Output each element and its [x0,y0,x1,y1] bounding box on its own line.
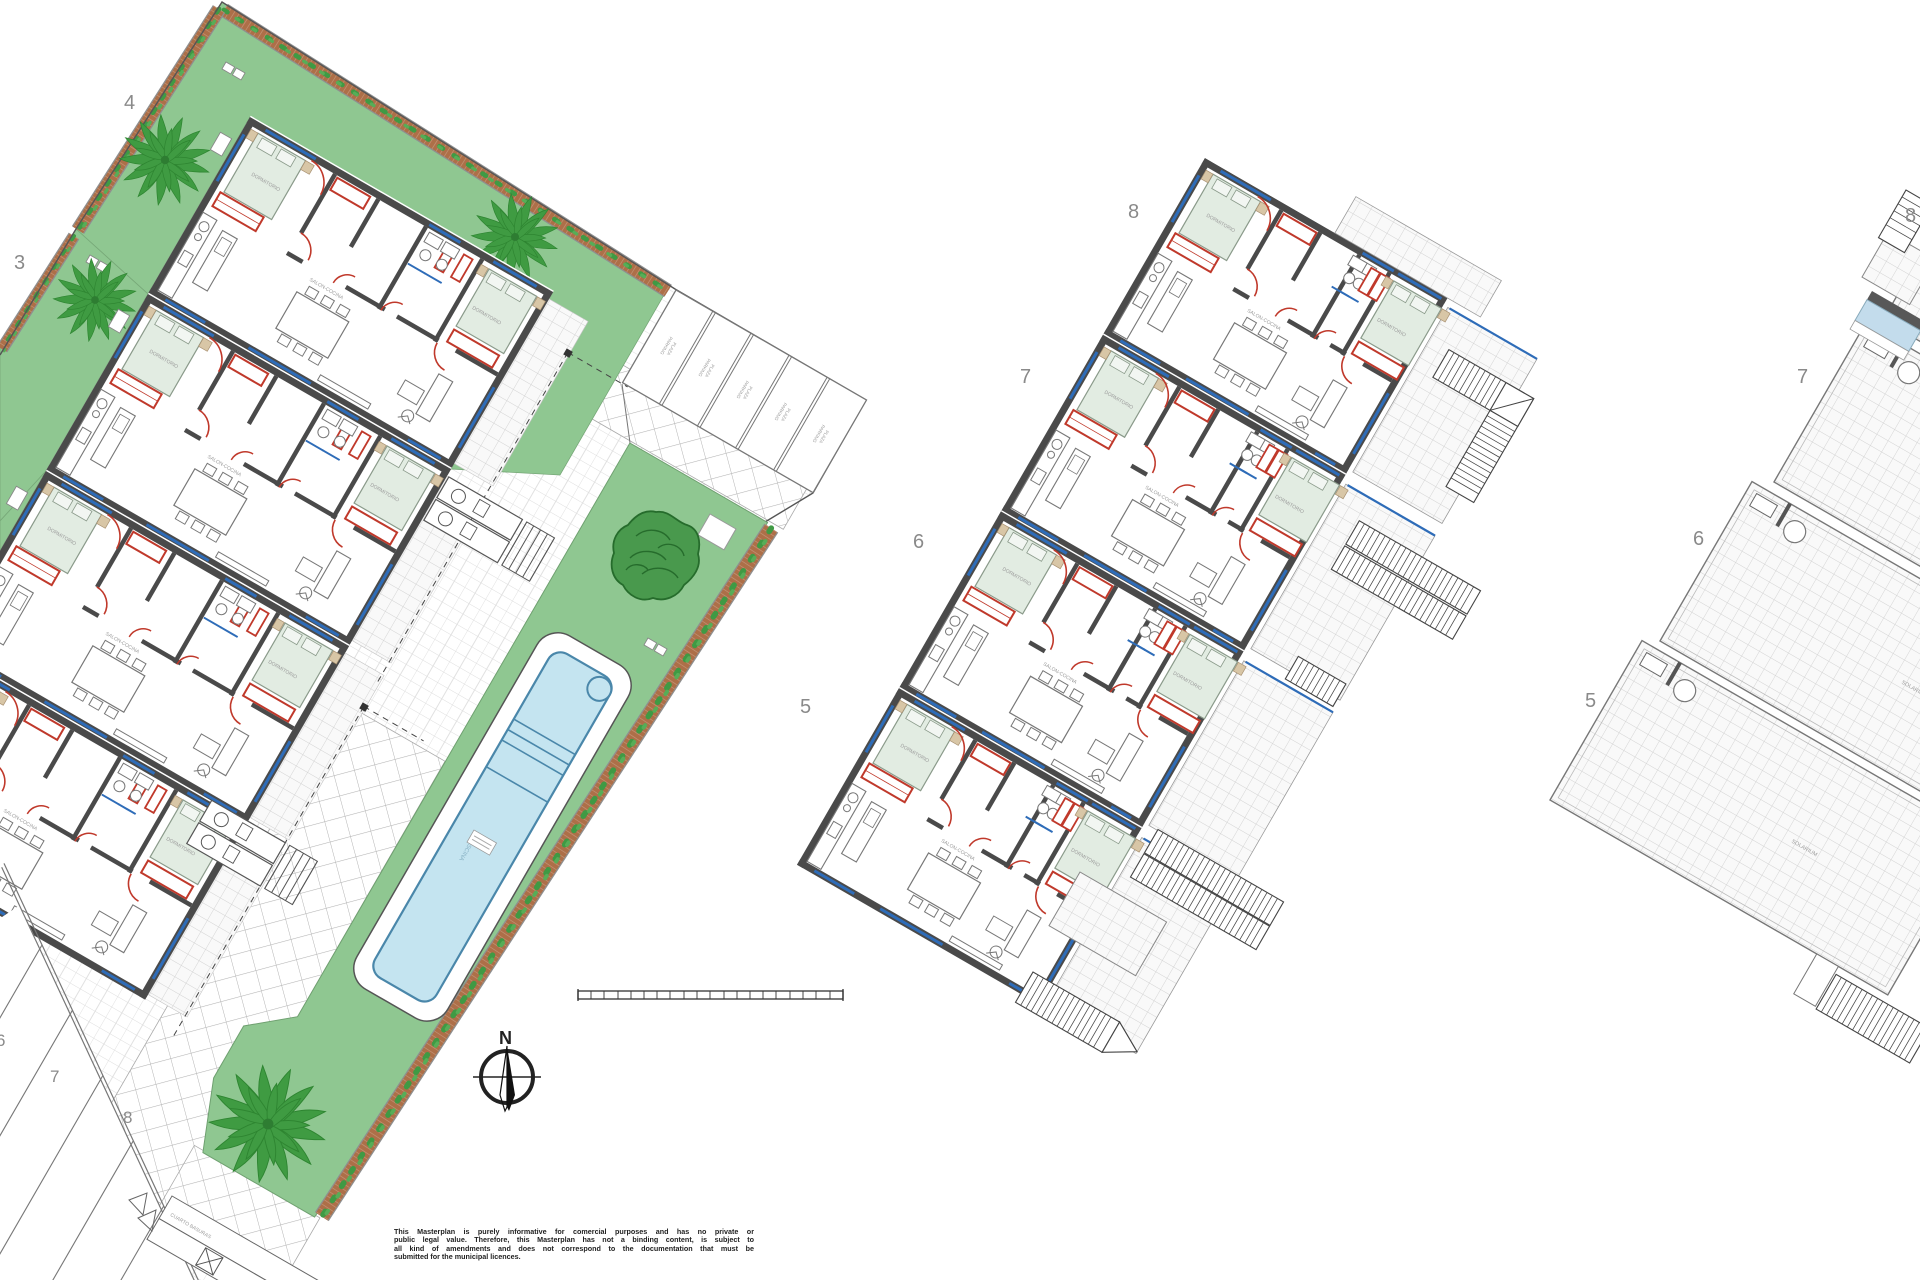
svg-text:6: 6 [1693,528,1704,550]
svg-text:6: 6 [913,531,924,553]
svg-text:7: 7 [50,1067,59,1086]
svg-text:6: 6 [0,1031,5,1050]
svg-text:N: N [499,1028,512,1048]
svg-text:7: 7 [1797,366,1808,388]
svg-text:8: 8 [1905,205,1916,227]
svg-text:4: 4 [124,92,135,114]
svg-text:5: 5 [1585,690,1596,712]
svg-text:3: 3 [14,252,25,274]
svg-text:8: 8 [123,1108,132,1127]
svg-text:7: 7 [1020,366,1031,388]
svg-text:5: 5 [800,696,811,718]
svg-text:8: 8 [1128,201,1139,223]
